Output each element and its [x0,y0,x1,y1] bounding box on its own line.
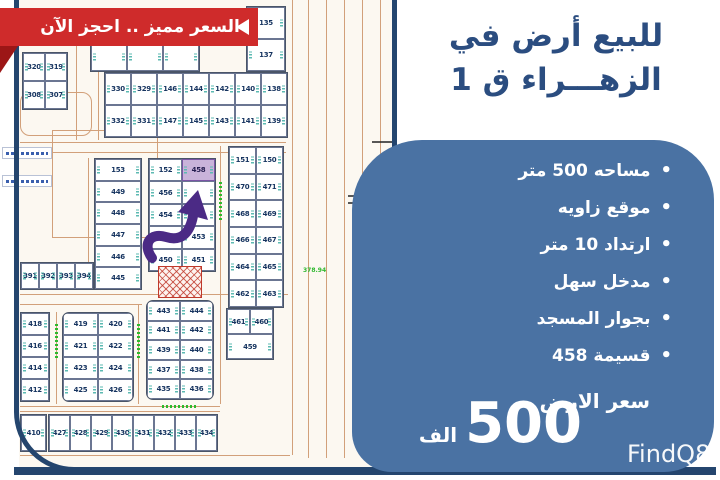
plot-393: 393 [57,263,75,289]
map-block-topgrid: 3303291461441421401383323311471451431411… [104,72,288,138]
plot-418: 418 [21,313,49,335]
plot-330: 330 [105,73,131,105]
map-block-418col: 418416414412 [20,312,50,402]
plot-145: 145 [183,105,209,137]
plot-144: 144 [183,73,209,105]
plot-329: 329 [131,73,157,105]
plot-443: 443 [147,301,180,321]
plot-466: 466 [229,227,256,254]
price-unit: الف [419,423,457,447]
plot-462: 462 [229,280,256,307]
plot-465: 465 [256,254,283,281]
ribbon-fold [0,46,18,73]
map-block-153col: 153449448447446445 [94,158,142,290]
plot-444: 444 [180,301,213,321]
plot-392: 392 [39,263,57,289]
ribbon-text: السعر مميز .. احجز الآن [18,17,240,37]
plot-141: 141 [235,105,261,137]
plot-427: 427 [49,415,70,451]
map-block-459block: 461460459 [226,308,274,360]
map-block-419block: 419420421422423424425426 [62,312,134,402]
plot-143: 143 [209,105,235,137]
plot-447: 447 [95,224,141,246]
plot-440: 440 [180,340,213,360]
plot-463: 463 [256,280,283,307]
panel-bullet: مدخل سهل [352,271,672,292]
plot-439: 439 [147,340,180,360]
plot-433: 433 [175,415,196,451]
plot-332: 332 [105,105,131,137]
map-block-470col: 151150470471468469466467464465462463 [228,146,284,308]
info-panel: مساحه 500 مترموقع زاويهارتداد 10 مترمدخل… [352,140,714,472]
plot-426: 426 [98,379,133,401]
panel-bullet: مساحه 500 متر [352,160,672,181]
plot-146: 146 [157,73,183,105]
plot-429: 429 [91,415,112,451]
plot-470: 470 [229,174,256,201]
plot-437: 437 [147,360,180,380]
plot-446: 446 [95,246,141,268]
plot-308: 308 [23,81,45,109]
plot-147: 147 [157,105,183,137]
plot-421: 421 [63,335,98,357]
plot-467: 467 [256,227,283,254]
plot-431: 431 [133,415,154,451]
plot-142: 142 [209,73,235,105]
plot-430: 430 [112,415,133,451]
plot-425: 425 [63,379,98,401]
plot-320: 320 [23,53,45,81]
plot-cell [91,43,127,71]
plot-424: 424 [98,357,133,379]
plot-331: 331 [131,105,157,137]
panel-bullet: موقع زاويه [352,197,672,218]
plot-438: 438 [180,360,213,380]
plot-428: 428 [70,415,91,451]
plot-422: 422 [98,335,133,357]
map-block-410: 410 [20,414,47,452]
ad-title: للبيع أرض في الزهـــراء ق 1 [400,14,712,102]
map-block-bottomrow: 427428429430431432433434 [48,414,218,452]
plot-448: 448 [95,202,141,224]
panel-bullet: قسيمة 458 [352,345,672,366]
title-line-1: للبيع أرض في [400,14,712,58]
arrow-annotation-icon [138,182,222,274]
plot-464: 464 [229,254,256,281]
plot-461: 461 [227,309,250,334]
plot-140: 140 [235,73,261,105]
plot-391: 391 [21,263,39,289]
plot-319: 319 [45,53,67,81]
plot-434: 434 [196,415,217,451]
plot-419: 419 [63,313,98,335]
panel-bullet: ارتداد 10 متر [352,234,672,255]
plot-432: 432 [154,415,175,451]
plot-307: 307 [45,81,67,109]
plot-460: 460 [250,309,273,334]
plot-153: 153 [95,159,141,181]
price-value: 500 [465,396,582,452]
plot-414: 414 [21,357,49,379]
plot-410: 410 [21,415,46,451]
plot-449: 449 [95,181,141,203]
advert-canvas: 378.94 320319308307135137330329146144142… [0,0,720,480]
plot-442: 442 [180,321,213,341]
plot-441: 441 [147,321,180,341]
price-row: 500 الف [419,396,582,452]
plot-cell [163,43,199,71]
plot-152: 152 [149,159,182,181]
plot-139: 139 [261,105,287,137]
plot-412: 412 [21,379,49,401]
plot-151: 151 [229,147,256,174]
plot-138: 138 [261,73,287,105]
plot-435: 435 [147,379,180,399]
plot-469: 469 [256,200,283,227]
panel-bullet: بجوار المسجد [352,308,672,329]
plot-471: 471 [256,174,283,201]
map-block-391row: 391392393394 [20,262,94,290]
panel-bullet-list: مساحه 500 مترموقع زاويهارتداد 10 مترمدخل… [352,140,714,366]
plot-458: 458 [182,159,215,181]
plot-459: 459 [227,334,273,359]
plot-468: 468 [229,200,256,227]
ribbon-banner: السعر مميز .. احجز الآن [0,8,258,46]
map-block-toprow [90,42,200,72]
plot-394: 394 [75,263,93,289]
plot-cell [127,43,163,71]
watermark-findq8: FindQ8 [627,440,710,468]
title-line-2: الزهـــراء ق 1 [400,58,712,102]
plot-436: 436 [180,379,213,399]
map-block-320: 320319308307 [22,52,68,110]
ribbon-arrow-icon [236,19,249,35]
plot-420: 420 [98,313,133,335]
plot-416: 416 [21,335,49,357]
plot-150: 150 [256,147,283,174]
plot-445: 445 [95,267,141,289]
map-block-443block: 443444441442439440437438435436 [146,300,214,400]
plot-423: 423 [63,357,98,379]
